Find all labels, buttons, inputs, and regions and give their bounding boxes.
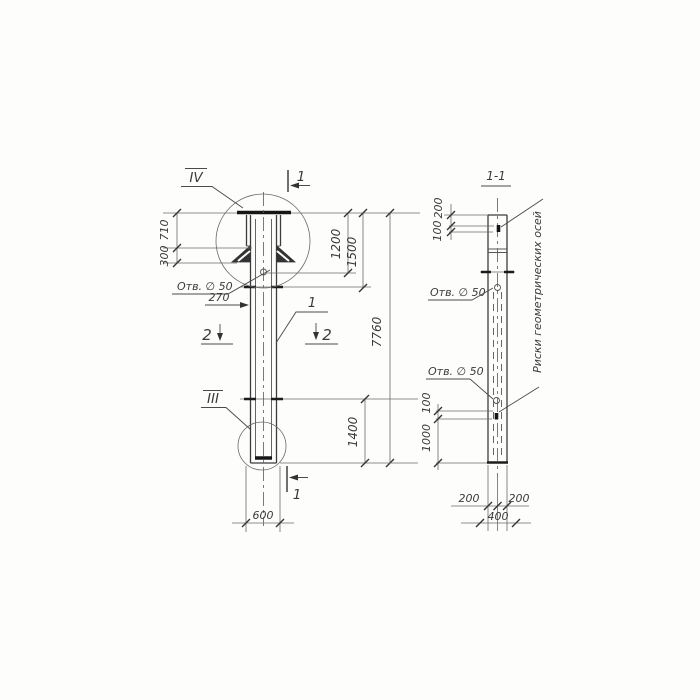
section-hole-label-top: Отв. ∅ 50 xyxy=(428,286,493,300)
section-1-top-text: 1 xyxy=(297,169,306,185)
dim-600-text: 600 xyxy=(253,509,274,522)
dim-100-top-text: 100 xyxy=(431,221,444,242)
dim-400-text: 400 xyxy=(488,510,509,523)
drawing-page: IV III 1 1 2 xyxy=(0,0,700,700)
detail-label-iv: IV xyxy=(181,169,243,209)
dim-200-left-text: 200 xyxy=(459,492,480,505)
section-marker-1-bottom: 1 xyxy=(287,466,308,503)
axes-note: Риски геометрических осей xyxy=(499,199,544,412)
section-marker-1-top: 1 xyxy=(288,169,310,192)
dim-chain-right: 1200 1500 7760 1400 xyxy=(267,209,418,467)
detail-iv-text: IV xyxy=(189,170,204,186)
drawing-canvas: IV III 1 1 2 xyxy=(0,0,700,700)
dim-1200-text: 1200 xyxy=(329,228,343,259)
dim-200-top-text: 200 xyxy=(432,198,445,219)
section-dims-top: 200 100 xyxy=(431,198,494,242)
section-1-bottom-text: 1 xyxy=(293,487,302,503)
section-hole-lower xyxy=(494,398,500,404)
section-hole-label-bottom-text: Отв. ∅ 50 xyxy=(428,365,484,378)
dim-100-bottom-text: 100 xyxy=(420,393,433,414)
dim-270: 270 xyxy=(205,291,249,308)
dim-270-text: 270 xyxy=(209,291,230,304)
section-hole-label-bottom: Отв. ∅ 50 xyxy=(426,365,493,399)
section-dims-bottom: 200 200 400 xyxy=(451,465,531,531)
dim-600: 600 xyxy=(232,466,294,532)
section-marker-2-left: 2 xyxy=(201,324,233,344)
axes-note-text: Риски геометрических осей xyxy=(531,211,544,373)
dim-300-text: 300 xyxy=(158,246,171,267)
part-callout-text: 1 xyxy=(308,295,317,311)
part-callout-1: 1 xyxy=(276,295,328,343)
dim-1400-text: 1400 xyxy=(346,416,360,447)
dim-710-text: 710 xyxy=(158,220,171,241)
dim-200-right-text: 200 xyxy=(509,492,530,505)
elevation-view: IV III 1 1 2 xyxy=(158,169,420,533)
section-dims-lower: 100 1000 xyxy=(420,393,493,471)
detail-iii-text: III xyxy=(207,391,219,407)
section-title-text: 1-1 xyxy=(486,169,506,183)
detail-label-iii: III xyxy=(201,391,250,430)
dim-7760-text: 7760 xyxy=(370,316,384,347)
section-view: 1-1 200 100 xyxy=(420,169,544,531)
section-2-right-text: 2 xyxy=(322,326,332,344)
section-2-left-text: 2 xyxy=(202,326,212,344)
section-marker-2-right: 2 xyxy=(305,323,338,344)
dim-1000-text: 1000 xyxy=(420,424,433,452)
dim-1500-text: 1500 xyxy=(345,236,359,267)
section-title: 1-1 xyxy=(481,169,511,186)
